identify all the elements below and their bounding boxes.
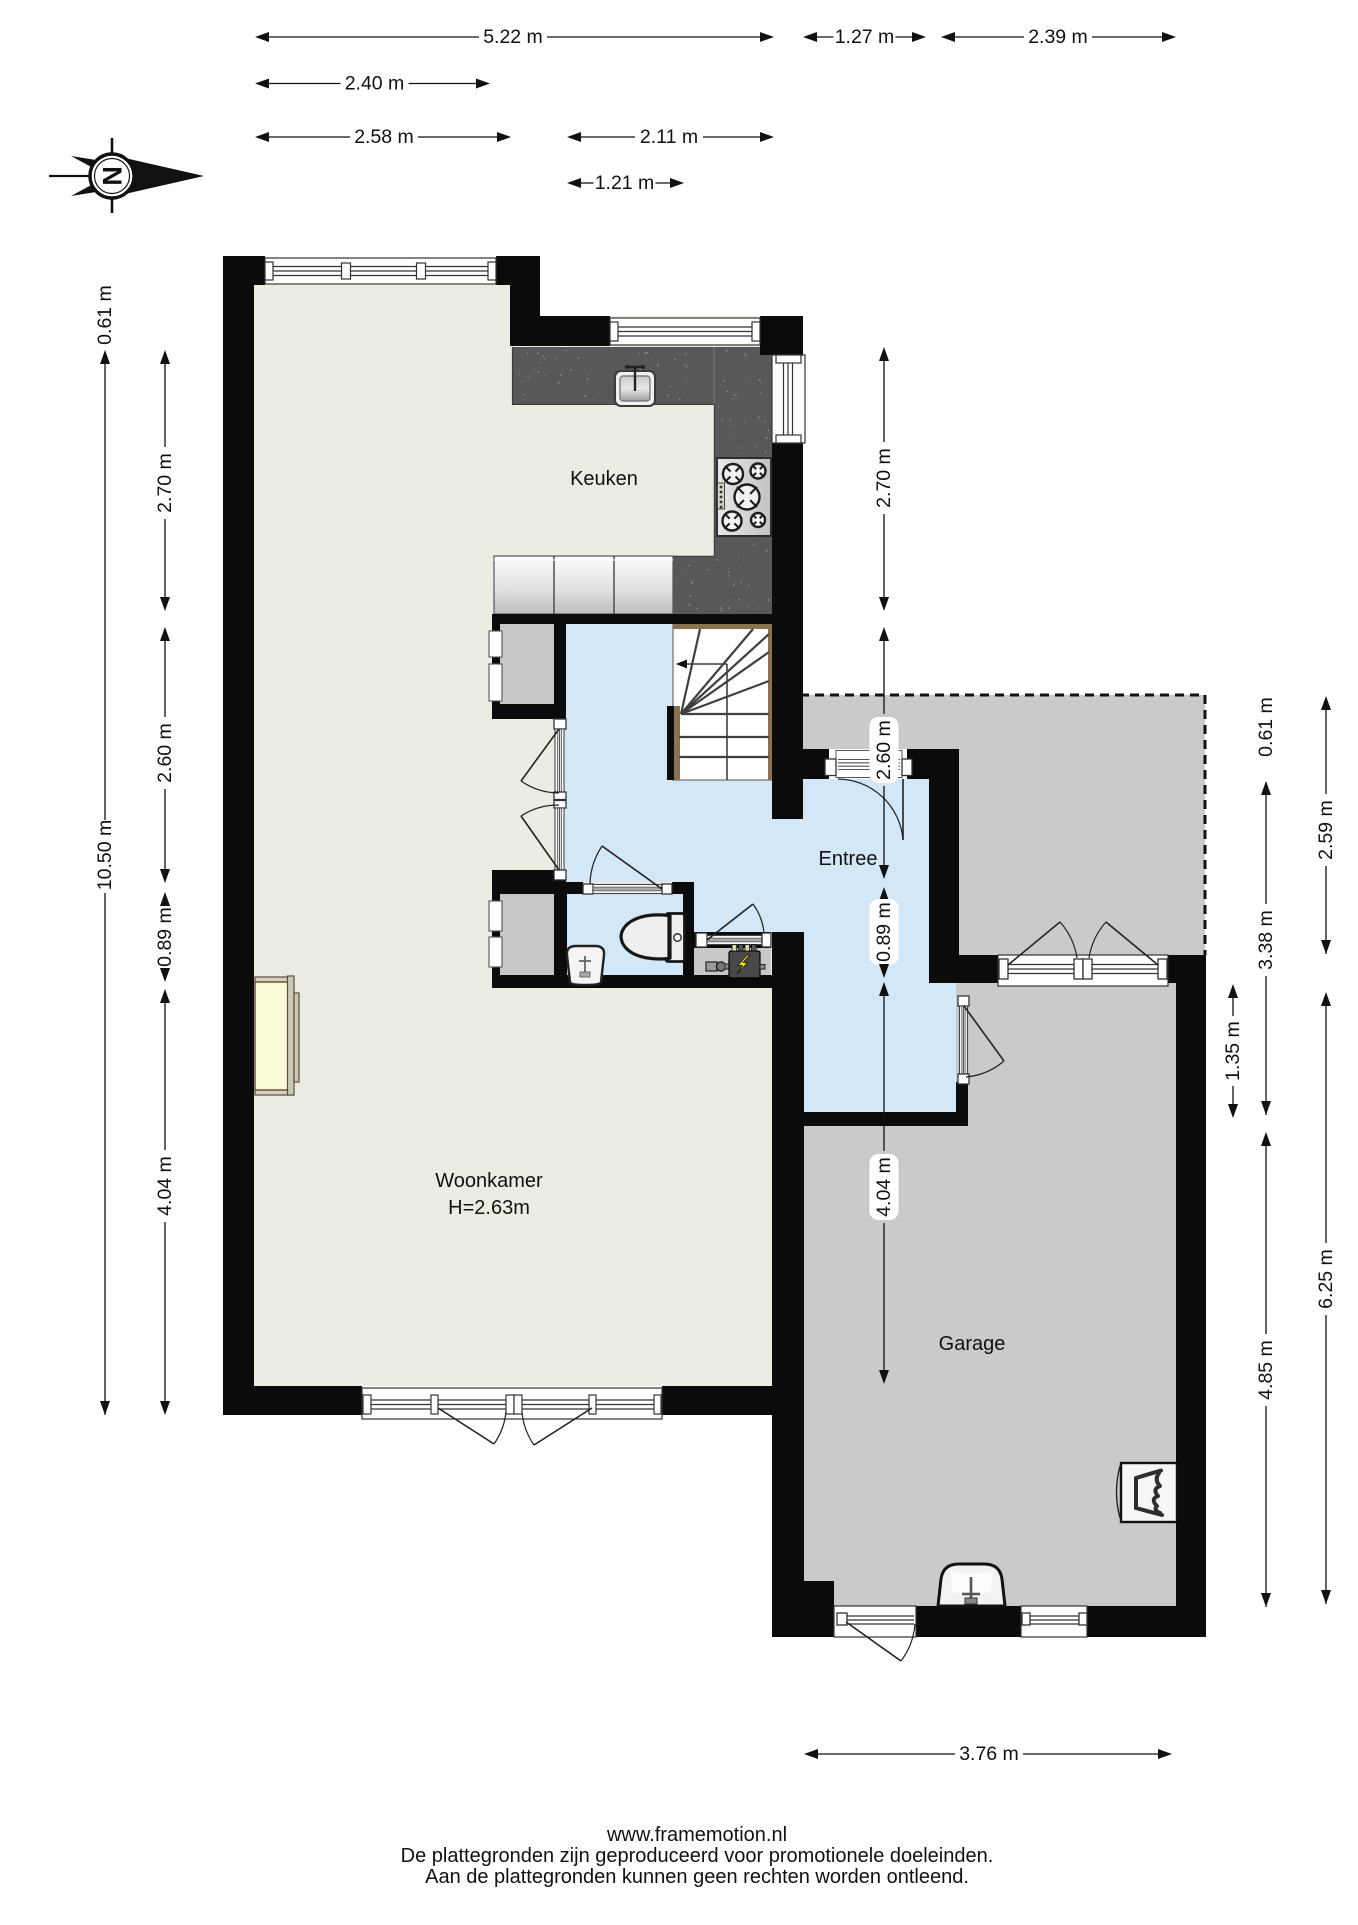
- svg-text:H=2.63m: H=2.63m: [448, 1197, 530, 1219]
- svg-text:0.89 m: 0.89 m: [873, 902, 895, 962]
- svg-text:2.59 m: 2.59 m: [1315, 800, 1337, 860]
- svg-text:0.61 m: 0.61 m: [94, 285, 116, 345]
- svg-text:Woonkamer: Woonkamer: [435, 1170, 543, 1192]
- svg-text:6.25 m: 6.25 m: [1315, 1249, 1337, 1309]
- svg-text:2.60 m: 2.60 m: [154, 723, 176, 783]
- svg-text:0.61 m: 0.61 m: [1255, 697, 1277, 757]
- svg-text:2.60 m: 2.60 m: [873, 720, 895, 780]
- svg-text:2.40 m: 2.40 m: [345, 73, 405, 95]
- svg-text:10.50 m: 10.50 m: [94, 820, 116, 890]
- svg-text:Entree: Entree: [819, 848, 878, 870]
- svg-text:2.70 m: 2.70 m: [873, 448, 895, 508]
- svg-text:4.04 m: 4.04 m: [873, 1157, 895, 1217]
- svg-text:3.38 m: 3.38 m: [1255, 910, 1277, 970]
- svg-text:1.35 m: 1.35 m: [1222, 1021, 1244, 1081]
- svg-text:1.21 m: 1.21 m: [595, 172, 655, 194]
- svg-text:4.85 m: 4.85 m: [1255, 1340, 1277, 1400]
- svg-text:2.11 m: 2.11 m: [640, 126, 698, 148]
- svg-text:1.27 m: 1.27 m: [835, 26, 895, 48]
- svg-text:2.39 m: 2.39 m: [1028, 26, 1088, 48]
- svg-text:Garage: Garage: [939, 1333, 1006, 1355]
- svg-text:4.04 m: 4.04 m: [154, 1156, 176, 1216]
- svg-text:Aan de plattegronden kunnen ge: Aan de plattegronden kunnen geen rechten…: [425, 1866, 969, 1888]
- svg-text:Keuken: Keuken: [570, 468, 638, 490]
- svg-text:2.70 m: 2.70 m: [154, 453, 176, 513]
- svg-text:3.76 m: 3.76 m: [959, 1743, 1019, 1765]
- svg-text:www.framemotion.nl: www.framemotion.nl: [606, 1824, 787, 1846]
- svg-text:2.58 m: 2.58 m: [354, 126, 414, 148]
- svg-text:N: N: [97, 166, 127, 186]
- svg-text:0.89 m: 0.89 m: [154, 907, 176, 967]
- svg-text:5.22 m: 5.22 m: [483, 26, 543, 48]
- svg-text:De plattegronden zijn geproduc: De plattegronden zijn geproduceerd voor …: [401, 1845, 994, 1867]
